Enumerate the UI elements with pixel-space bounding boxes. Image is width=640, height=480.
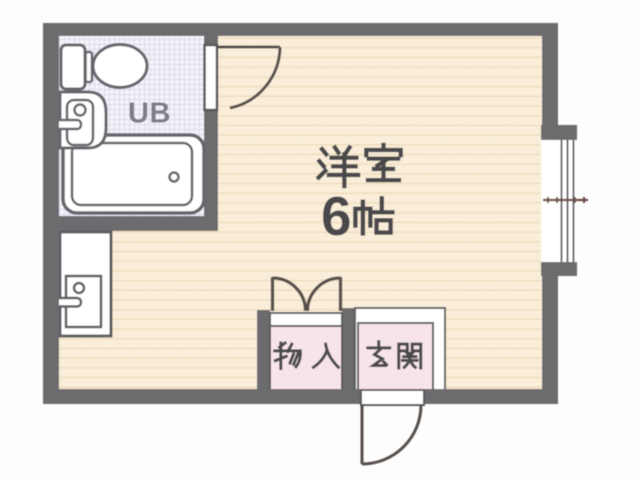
svg-text:UB: UB bbox=[128, 98, 171, 130]
svg-text:6: 6 bbox=[321, 185, 352, 247]
